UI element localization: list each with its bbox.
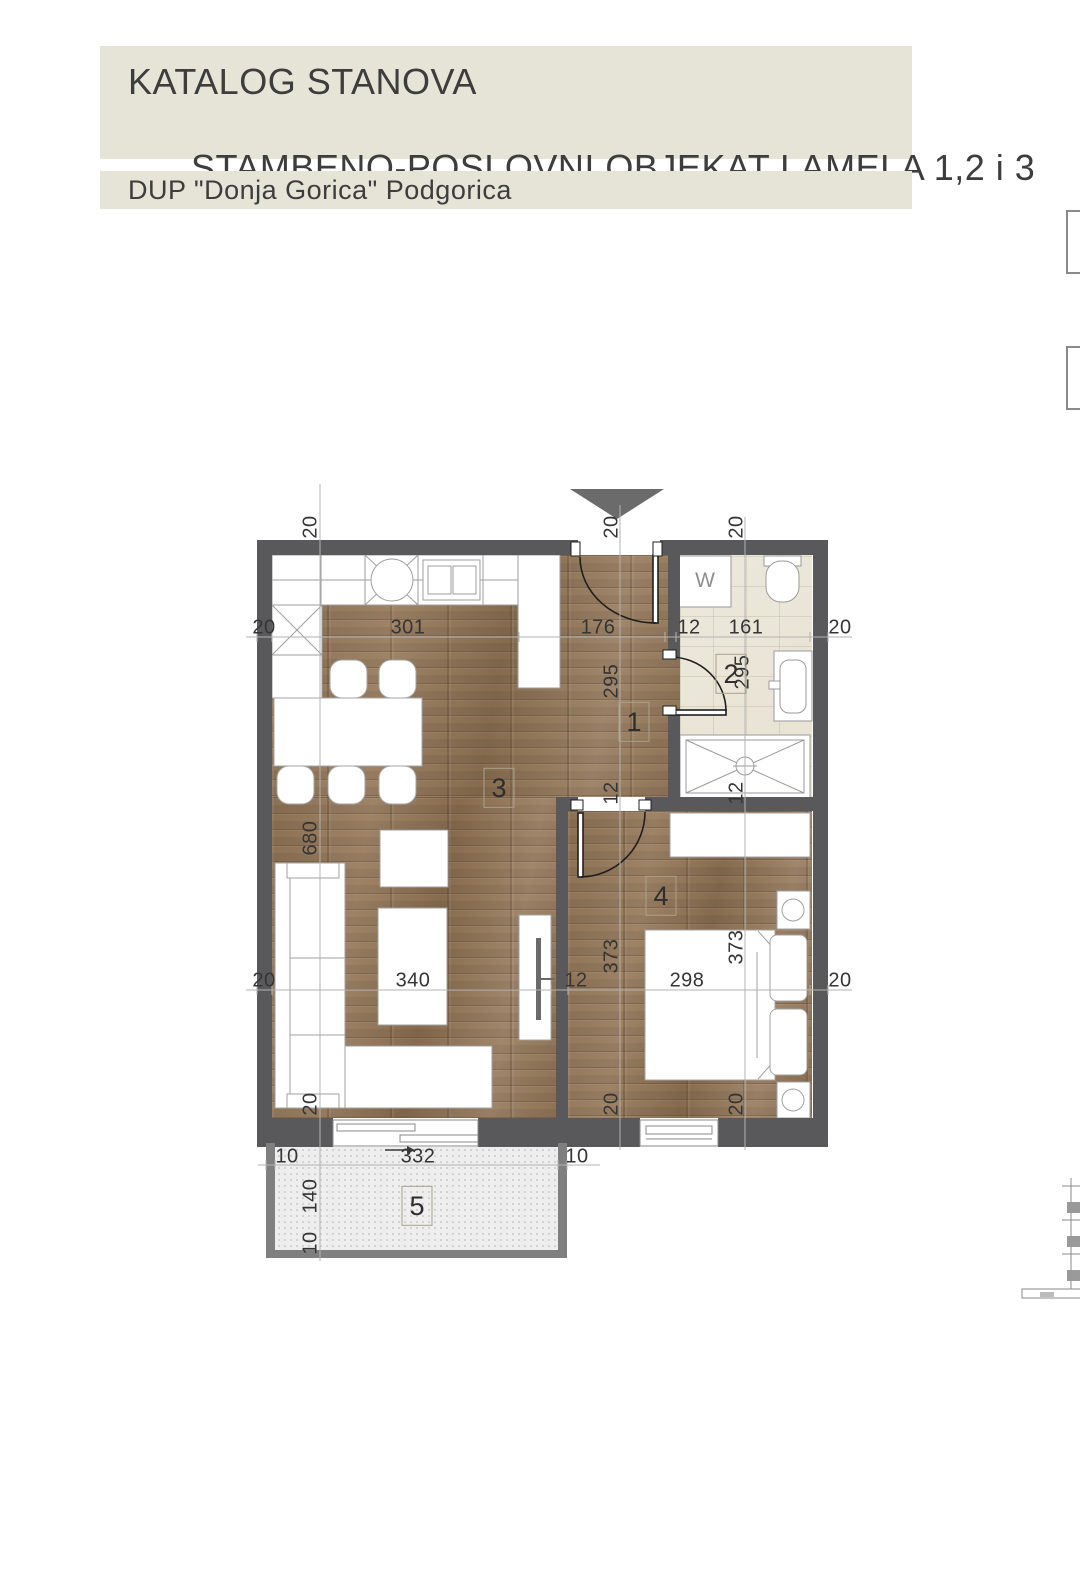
dimension-label: 20 (252, 617, 275, 640)
dimension-label: 20 (726, 1092, 749, 1115)
dimension-label: 10 (565, 1146, 588, 1169)
bedroom-furniture (645, 813, 810, 1118)
floor-plan-drawing (0, 0, 1080, 1573)
bedroom-window (640, 1120, 718, 1146)
dimension-label: 298 (670, 970, 705, 993)
dimension-label: 161 (729, 617, 764, 640)
dimension-label: 20 (601, 1092, 624, 1115)
dimension-label: 373 (726, 930, 749, 965)
dimension-label: 340 (396, 970, 431, 993)
room-label-bedroom: 4 (645, 876, 676, 916)
dimension-label: 20 (828, 970, 851, 993)
dimension-label: 12 (726, 781, 749, 804)
coffee-table (378, 908, 447, 1025)
dimension-label: 20 (726, 515, 749, 538)
dimension-label: 373 (601, 939, 624, 974)
armchair (380, 830, 448, 887)
catalog-page: KATALOG STANOVA STAMBENO-POSLOVNI OBJEKA… (0, 0, 1080, 1573)
dimension-label: 680 (300, 821, 323, 856)
dimension-label: 20 (300, 515, 323, 538)
edge-artifacts (1022, 211, 1080, 1298)
dimension-label: 12 (564, 970, 587, 993)
dimension-label: 10 (275, 1146, 298, 1169)
tv-unit (519, 915, 555, 1040)
dimension-label: 20 (300, 1092, 323, 1115)
dimension-label: 301 (391, 617, 426, 640)
room-label-balcony: 5 (401, 1186, 432, 1226)
room-label-living: 3 (483, 768, 514, 808)
dimension-label: 20 (252, 970, 275, 993)
dimension-label: 140 (300, 1179, 323, 1214)
dimension-label: 295 (601, 664, 624, 699)
dimension-label: 12 (601, 781, 624, 804)
dimension-label: 20 (828, 617, 851, 640)
dimension-label: 20 (601, 515, 624, 538)
dimension-label: 176 (581, 617, 616, 640)
washing-machine-label: W (695, 569, 715, 593)
dimension-label: 12 (677, 617, 700, 640)
dimension-label: 10 (300, 1231, 323, 1254)
room-label-hall: 1 (618, 702, 649, 742)
room-label-bathroom: 2 (715, 654, 746, 694)
dimension-label: 332 (401, 1146, 436, 1169)
